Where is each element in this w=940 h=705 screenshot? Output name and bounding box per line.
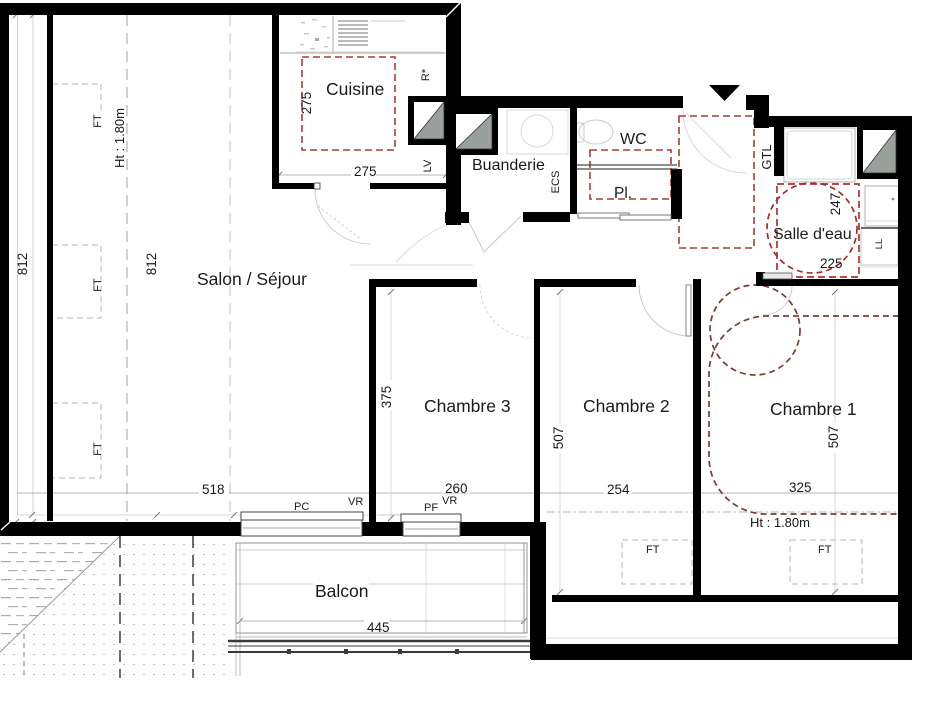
svg-text:247: 247 (828, 193, 843, 216)
svg-text:LL: LL (874, 239, 885, 250)
svg-text:VR: VR (442, 495, 457, 507)
svg-text:225: 225 (820, 256, 843, 271)
svg-text:507: 507 (551, 427, 566, 450)
svg-text:Salle d'eau: Salle d'eau (773, 226, 852, 243)
svg-text:Ht : 1.80m: Ht : 1.80m (112, 108, 127, 168)
svg-text:Ht : 1.80m: Ht : 1.80m (750, 515, 810, 530)
svg-text:WC: WC (620, 131, 647, 148)
svg-text:R*: R* (420, 68, 432, 81)
svg-text:275: 275 (354, 164, 377, 179)
svg-text:325: 325 (789, 480, 812, 495)
svg-text:PC: PC (294, 501, 309, 513)
svg-text:FT: FT (92, 278, 104, 292)
svg-text:FT: FT (92, 442, 104, 456)
svg-text:FT: FT (92, 114, 104, 128)
svg-text:518: 518 (202, 482, 225, 497)
svg-text:VR: VR (348, 496, 363, 508)
svg-text:507: 507 (826, 426, 841, 449)
svg-text:FT: FT (646, 544, 660, 556)
svg-text:Buanderie: Buanderie (472, 157, 545, 174)
svg-text:812: 812 (15, 253, 30, 276)
svg-text:FT: FT (818, 544, 832, 556)
svg-text:Balcon: Balcon (315, 581, 369, 601)
svg-text:ECS: ECS (550, 171, 562, 194)
svg-text:Chambre 1: Chambre 1 (770, 399, 857, 419)
svg-text:375: 375 (379, 386, 394, 409)
svg-text:Chambre 2: Chambre 2 (583, 396, 670, 416)
svg-text:Salon / Séjour: Salon / Séjour (197, 269, 307, 289)
svg-text:Pl.: Pl. (614, 185, 632, 202)
svg-text:260: 260 (445, 481, 468, 496)
svg-text:PF: PF (424, 502, 438, 514)
svg-text:Chambre 3: Chambre 3 (424, 396, 511, 416)
svg-text:445: 445 (367, 620, 390, 635)
svg-text:275: 275 (299, 92, 314, 115)
svg-text:GTL: GTL (759, 144, 774, 169)
svg-text:LV: LV (422, 159, 434, 172)
svg-text:812: 812 (144, 253, 159, 276)
svg-text:Cuisine: Cuisine (326, 79, 384, 99)
svg-text:254: 254 (607, 482, 630, 497)
